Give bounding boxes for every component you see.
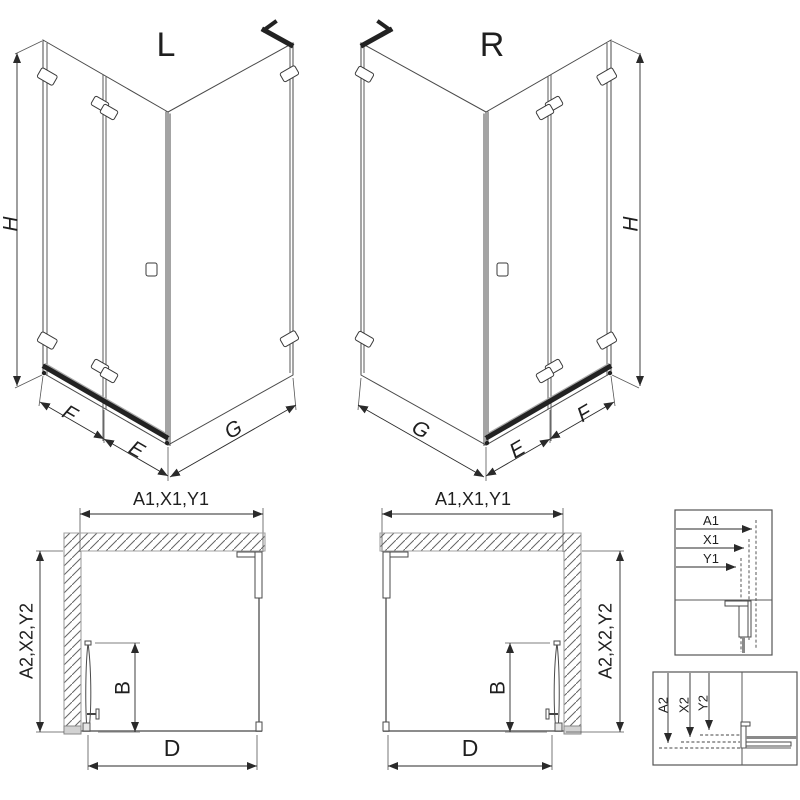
dim-label-h-left: H	[0, 216, 22, 232]
wall-clamp-top	[596, 67, 617, 86]
plan-view-left: A1,X1,Y1 B D A2,X2,Y2	[16, 489, 265, 770]
plan-dim-depth-right: A2,X2,Y2	[595, 603, 615, 679]
walls	[380, 533, 581, 733]
door-knob	[146, 263, 157, 276]
dim-label-f-left: F	[58, 401, 82, 428]
wall-clamp-bottom	[37, 331, 58, 350]
side-clamp-bottom	[280, 330, 300, 347]
plan-dim-b-right: B	[486, 681, 509, 695]
detail-box-depth: A2 X2 Y2	[653, 672, 797, 765]
plan-dim-depth-left: A2,X2,Y2	[16, 603, 36, 679]
wall-bracket	[264, 30, 291, 45]
variant-label-right: R	[480, 26, 505, 64]
detail-box-width: A1 X1 Y1	[675, 510, 772, 655]
wall-bracket	[363, 30, 390, 45]
dim-label-e-left: E	[125, 436, 149, 463]
shower-enclosure-diagram: L H F	[0, 0, 800, 800]
technical-drawing-page: L H F	[0, 0, 800, 800]
plan-dim-d-right: D	[462, 735, 479, 761]
dim-label-h-right: H	[619, 216, 642, 232]
wall-clamp-top	[37, 67, 58, 86]
side-panel-left	[168, 43, 293, 445]
door-plan	[83, 641, 99, 731]
detail-label-x2: X2	[677, 697, 692, 713]
side-clamp-top	[280, 65, 300, 82]
detail-label-y2: Y2	[696, 695, 711, 711]
detail-label-y1: Y1	[703, 551, 719, 566]
variant-label-left: L	[157, 26, 176, 64]
isometric-view-right: R H F E G	[355, 22, 643, 481]
dim-label-g-left: G	[221, 416, 247, 444]
plan-dim-width-left: A1,X1,Y1	[133, 489, 209, 509]
wall-clamp-bottom	[596, 331, 617, 350]
isometric-view-left: L H F	[0, 22, 299, 481]
side-clamp-top	[355, 66, 375, 83]
walls	[64, 533, 265, 733]
dim-label-e-right: E	[506, 436, 530, 463]
side-clamp-bottom	[355, 331, 375, 348]
plan-dim-b-left: B	[111, 681, 134, 695]
detail-label-x1: X1	[703, 532, 719, 547]
plan-dim-d-left: D	[164, 735, 181, 761]
dim-label-f-right: F	[573, 400, 597, 427]
detail-label-a1: A1	[703, 513, 719, 528]
door-plan	[546, 641, 562, 731]
door-knob	[497, 263, 508, 276]
plan-view-right: A1,X1,Y1 B D A2,X2,Y2	[380, 489, 624, 770]
plan-dim-width-right: A1,X1,Y1	[435, 489, 511, 509]
side-panel-right	[361, 43, 486, 445]
dim-label-g-right: G	[408, 416, 434, 444]
